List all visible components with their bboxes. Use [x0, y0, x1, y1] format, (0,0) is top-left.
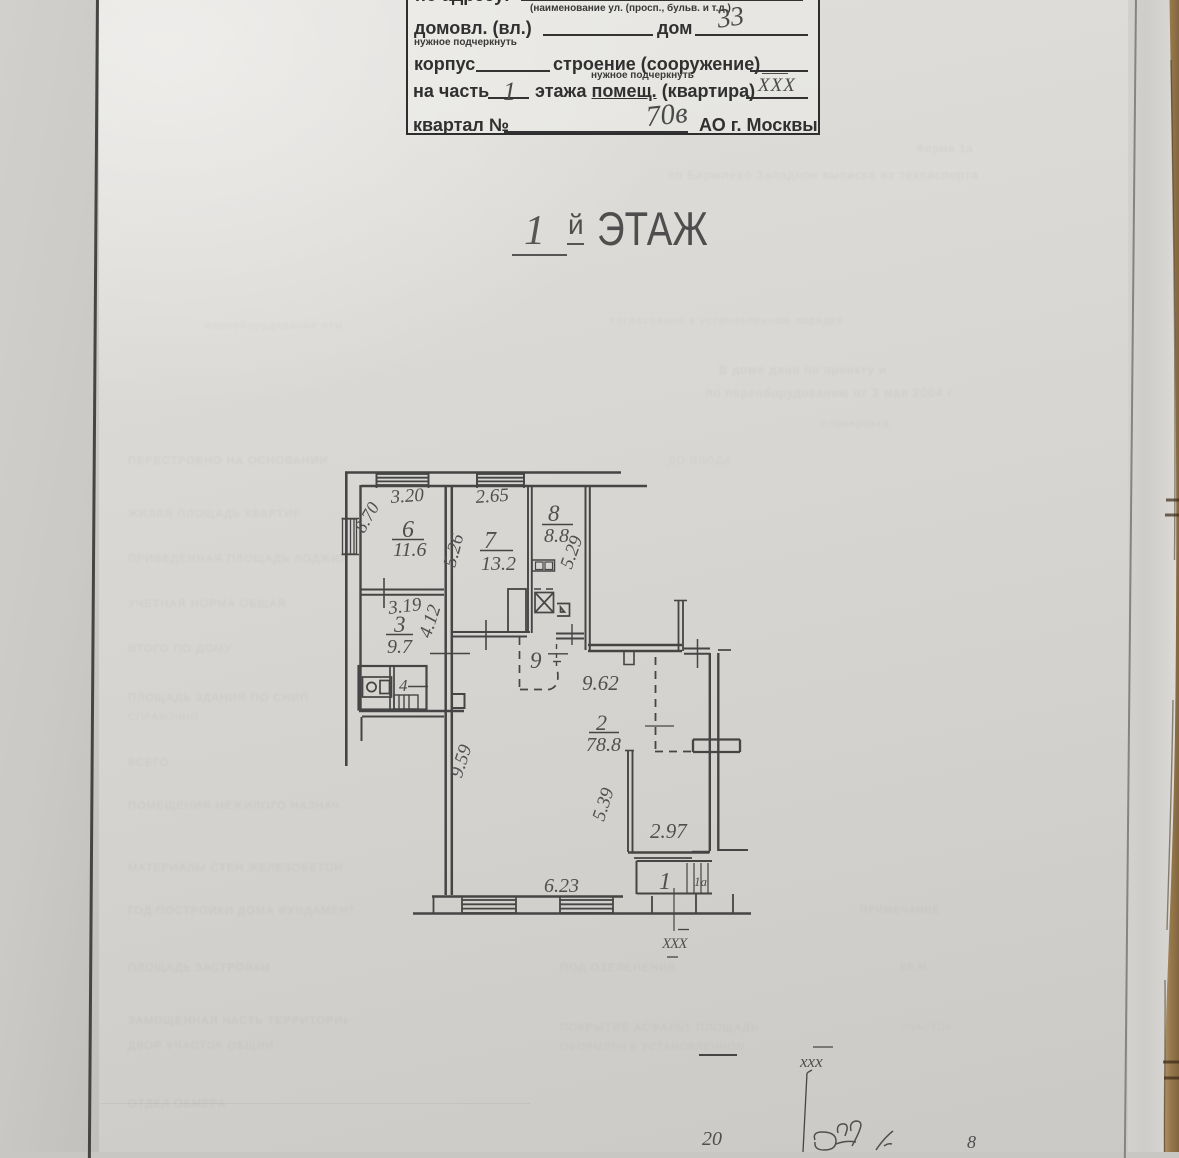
svg-text:5.39: 5.39: [588, 785, 618, 824]
svg-text:3.20: 3.20: [389, 485, 425, 508]
svg-text:9: 9: [530, 648, 542, 673]
svg-text:20: 20: [702, 1128, 722, 1150]
svg-text:8: 8: [967, 1132, 976, 1152]
svg-text:78.8: 78.8: [586, 734, 621, 756]
svg-text:2.65: 2.65: [475, 485, 510, 508]
svg-text:2.97: 2.97: [650, 819, 688, 843]
svg-text:11.6: 11.6: [393, 539, 427, 561]
svg-text:6.23: 6.23: [544, 875, 579, 897]
svg-text:1: 1: [659, 869, 671, 895]
svg-text:8.70: 8.70: [350, 499, 383, 536]
svg-text:xxx: xxx: [799, 1052, 823, 1071]
svg-text:13.2: 13.2: [481, 553, 516, 575]
svg-text:1а: 1а: [694, 874, 708, 889]
svg-text:2: 2: [596, 710, 607, 735]
svg-text:3: 3: [393, 612, 406, 637]
svg-text:9.7: 9.7: [387, 636, 413, 658]
svg-text:4: 4: [399, 676, 408, 695]
svg-text:5.26: 5.26: [440, 531, 469, 569]
svg-text:XXX: XXX: [661, 936, 688, 952]
svg-text:8: 8: [548, 501, 560, 526]
svg-text:9.62: 9.62: [582, 671, 619, 695]
